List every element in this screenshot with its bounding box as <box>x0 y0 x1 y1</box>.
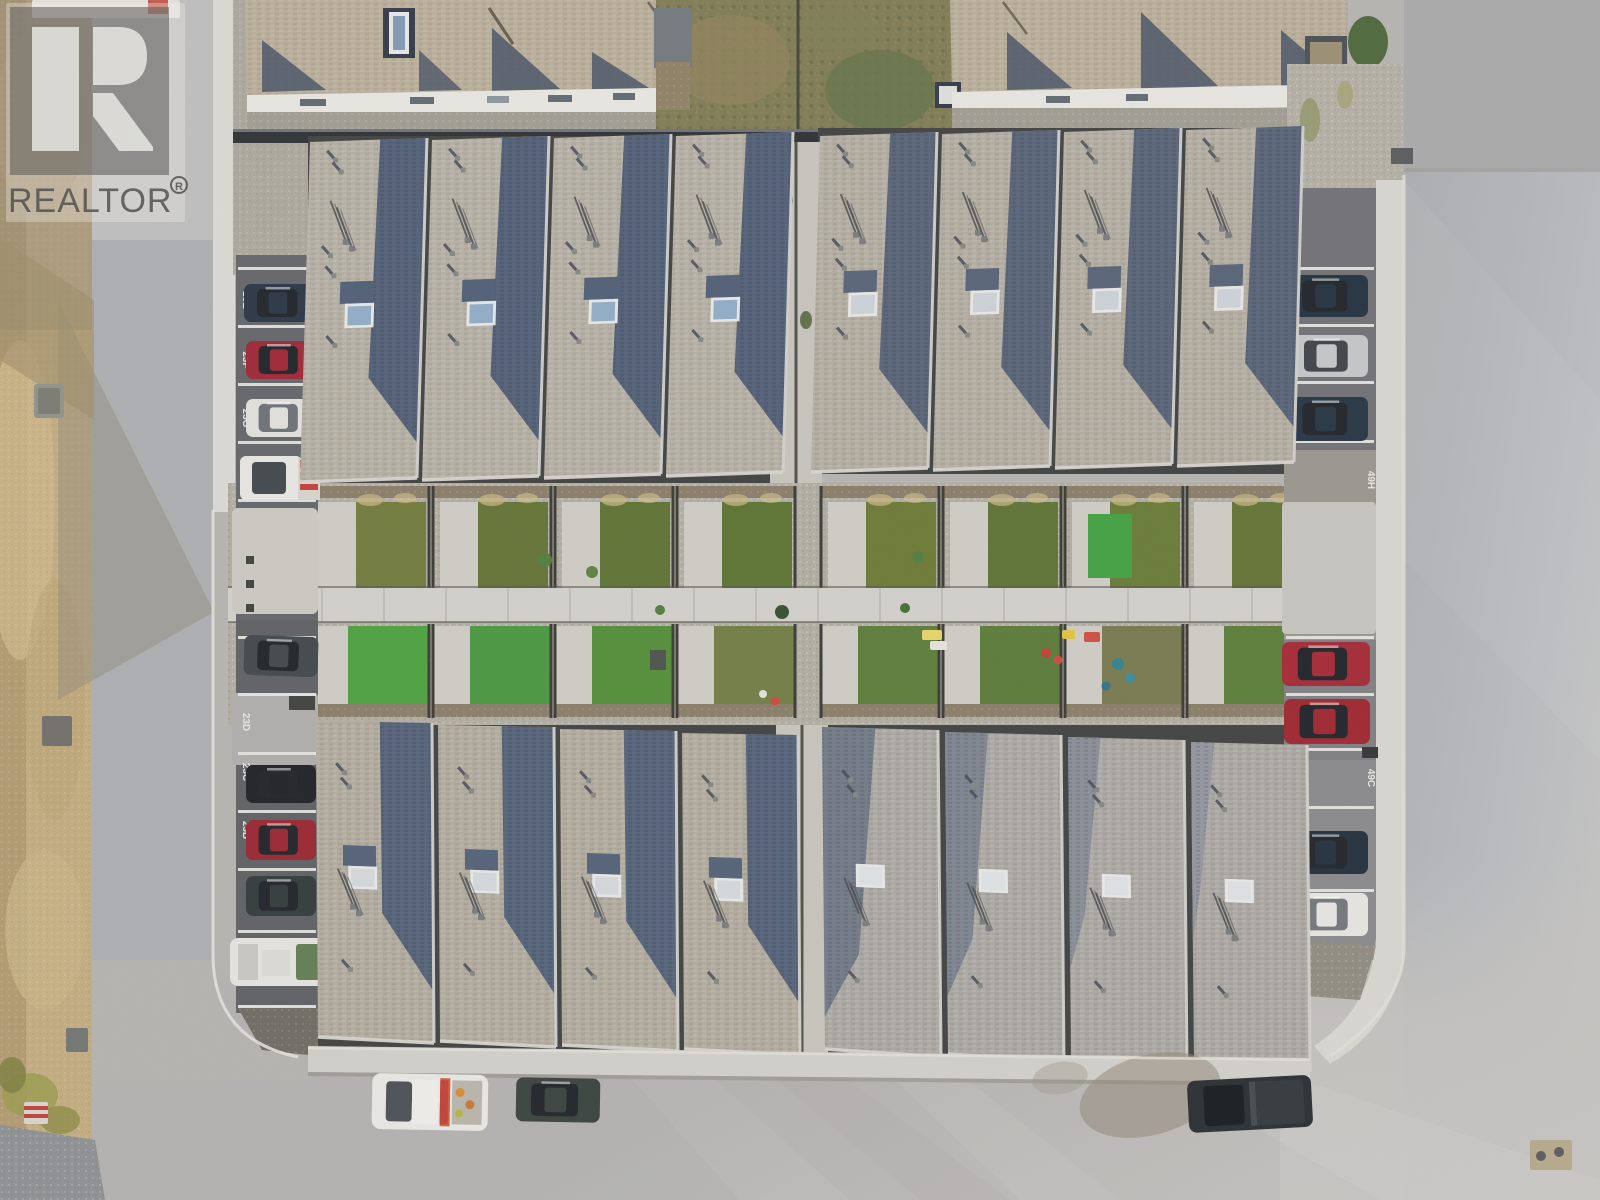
svg-text:REALTOR: REALTOR <box>8 182 172 220</box>
svg-text:R: R <box>175 181 183 193</box>
